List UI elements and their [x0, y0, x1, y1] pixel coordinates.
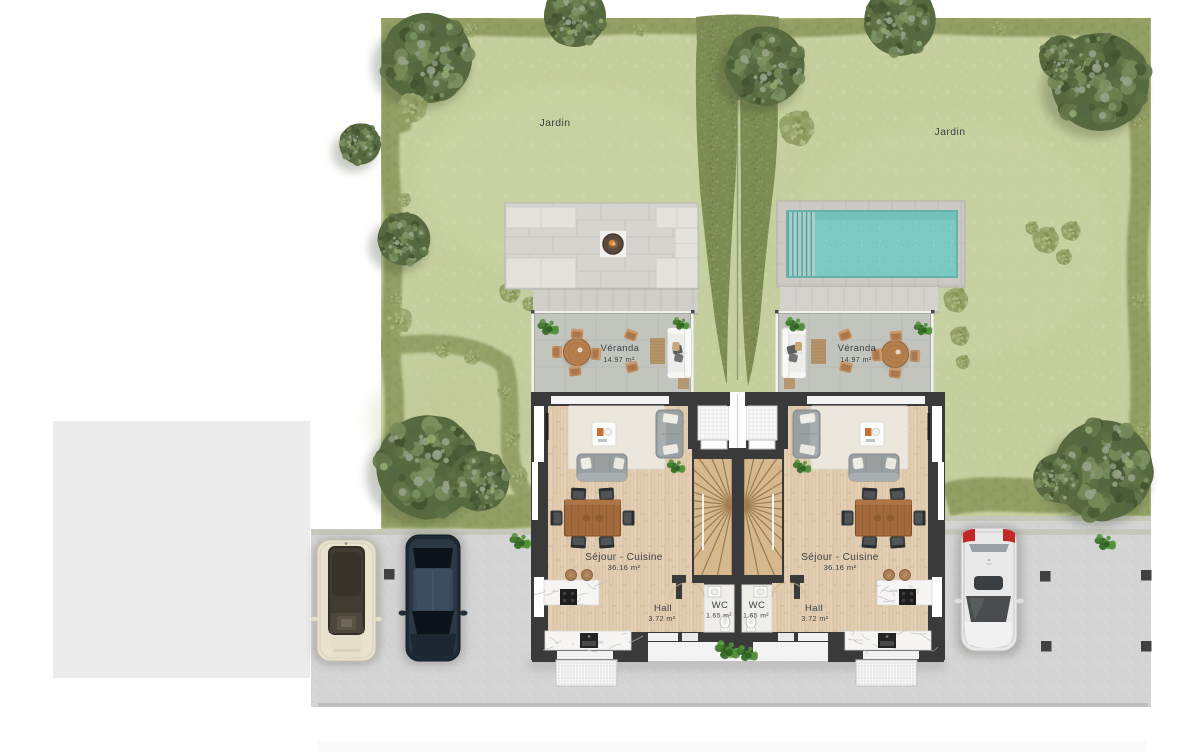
svg-text:Véranda: Véranda: [601, 343, 640, 354]
svg-text:36.16 m²: 36.16 m²: [608, 563, 641, 572]
svg-text:Hall: Hall: [805, 603, 823, 614]
svg-text:3.72 m²: 3.72 m²: [801, 614, 828, 623]
svg-text:WC: WC: [749, 600, 766, 611]
svg-text:WC: WC: [712, 600, 729, 611]
svg-text:Séjour - Cuisine: Séjour - Cuisine: [585, 552, 663, 563]
svg-text:Jardin: Jardin: [540, 117, 571, 129]
svg-text:1.65 m²: 1.65 m²: [706, 613, 732, 620]
svg-text:14.97 m²: 14.97 m²: [603, 355, 635, 364]
svg-text:Jardin: Jardin: [935, 126, 966, 138]
svg-text:Véranda: Véranda: [838, 343, 877, 354]
svg-text:Séjour - Cuisine: Séjour - Cuisine: [801, 552, 879, 563]
svg-text:3.72 m²: 3.72 m²: [648, 614, 675, 623]
svg-text:1.65 m²: 1.65 m²: [743, 613, 769, 620]
svg-text:14.97 m²: 14.97 m²: [840, 355, 872, 364]
svg-text:Hall: Hall: [654, 603, 672, 614]
svg-text:36.16 m²: 36.16 m²: [824, 563, 857, 572]
